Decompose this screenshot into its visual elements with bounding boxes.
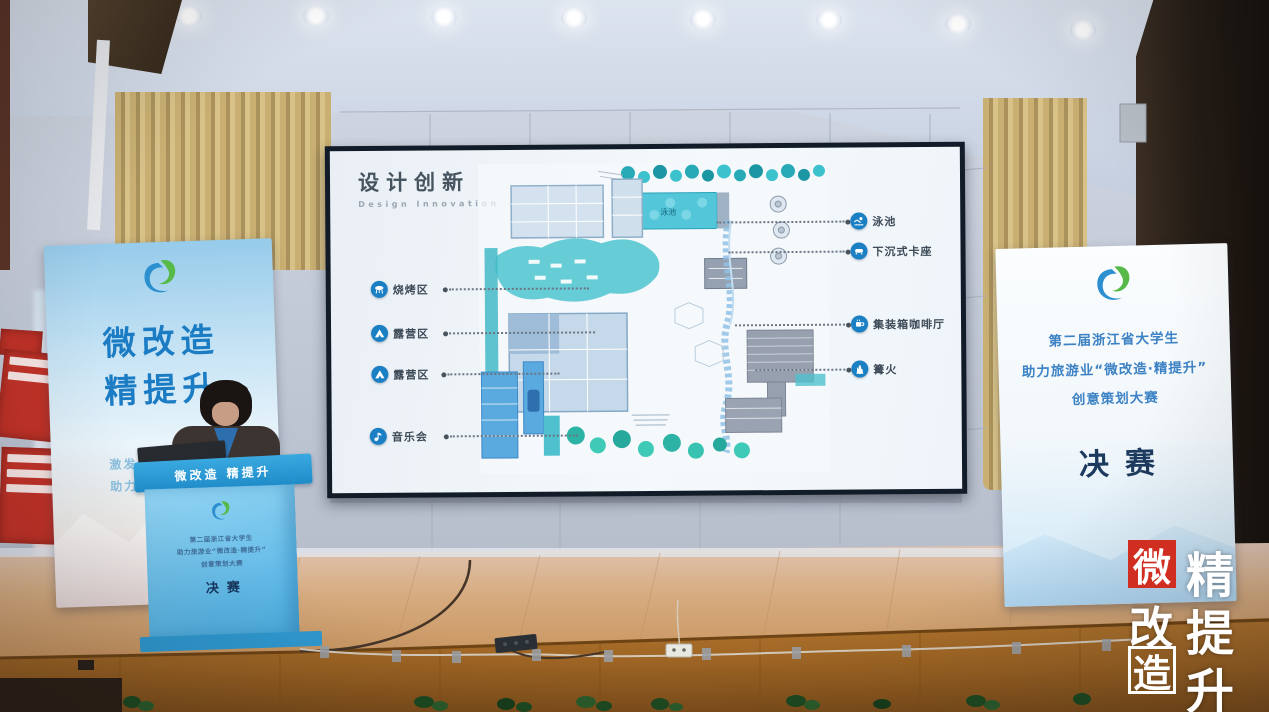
plan-callout-camp-1: 露营区 [371,325,429,342]
bonfire-icon [851,360,868,377]
callout-label: 集装箱咖啡厅 [873,315,945,332]
competition-name-line3: 创意策划大赛 [999,382,1232,418]
competition-name: 第二届浙江省大学生 助力旅游业“微改造·精提升” 创意策划大赛 [997,323,1231,418]
cable-clips [320,639,1111,663]
coffee-icon [851,315,868,332]
led-screen: 设计创新 Design Innovation [325,142,967,498]
plan-callout-container-cafe: 集装箱咖啡厅 [851,315,945,333]
plan-callout-concert: 音乐会 [370,428,428,445]
event-photo: 设计创新 Design Innovation [0,0,1269,712]
power-adapter [666,644,692,657]
event-logo [135,255,183,303]
wall-speaker-box [1120,104,1146,142]
callout-label: 泳池 [872,213,896,229]
tent-icon [371,366,388,383]
final-round-label: 决赛 [1000,436,1233,486]
stage-socket [78,660,94,670]
callout-label: 音乐会 [392,428,428,444]
plan-callout-pool: 泳池 [850,212,896,229]
callout-label: 露营区 [393,325,429,341]
site-plan: 泳池 [478,162,830,474]
banner-title-line1: 微改造 [46,314,276,370]
watermark-char-box: 造 [1128,646,1176,694]
slide: 设计创新 Design Innovation [330,147,962,493]
swim-icon [850,212,867,229]
building-north [511,185,603,238]
pool-label: 泳池 [660,207,676,217]
tent-icon [371,325,388,342]
podium: 微改造 精提升 第二届浙江省大学生 助力旅游业“微改造·精提升” 创意策划大赛 … [130,452,325,660]
leader-line [755,369,845,372]
grill-icon [371,281,388,298]
stage-plants [0,678,1091,712]
sofa-icon [850,242,867,259]
event-logo [207,499,234,526]
callout-label: 烧烤区 [393,281,429,297]
music-icon [370,428,387,445]
watermark-char-box: 微 [1128,540,1176,588]
podium-final-label: 决赛 [148,574,299,598]
plan-callout-bonfire: 篝火 [851,360,897,377]
podium-front: 第二届浙江省大学生 助力旅游业“微改造·精提升” 创意策划大赛 决赛 [144,484,299,639]
callout-label: 篝火 [873,361,897,377]
callout-label: 下沉式卡座 [872,242,932,258]
plan-callout-sunken-seating: 下沉式卡座 [850,242,932,260]
callout-label: 露营区 [393,366,429,382]
power-strip [494,634,537,653]
watermark-logo: 微 改 造 精 提 升 [1124,534,1266,712]
event-logo [1088,261,1137,310]
presenter-face [212,402,239,426]
presenter-hair-fringe [204,382,248,398]
watermark-char: 升 [1186,652,1234,712]
podium-competition-name: 第二届浙江省大学生 助力旅游业“微改造·精提升” 创意策划大赛 [146,530,297,572]
plan-callout-camp-2: 露营区 [371,366,429,383]
deck-south [726,398,782,432]
plan-callout-bbq: 烧烤区 [371,281,429,298]
